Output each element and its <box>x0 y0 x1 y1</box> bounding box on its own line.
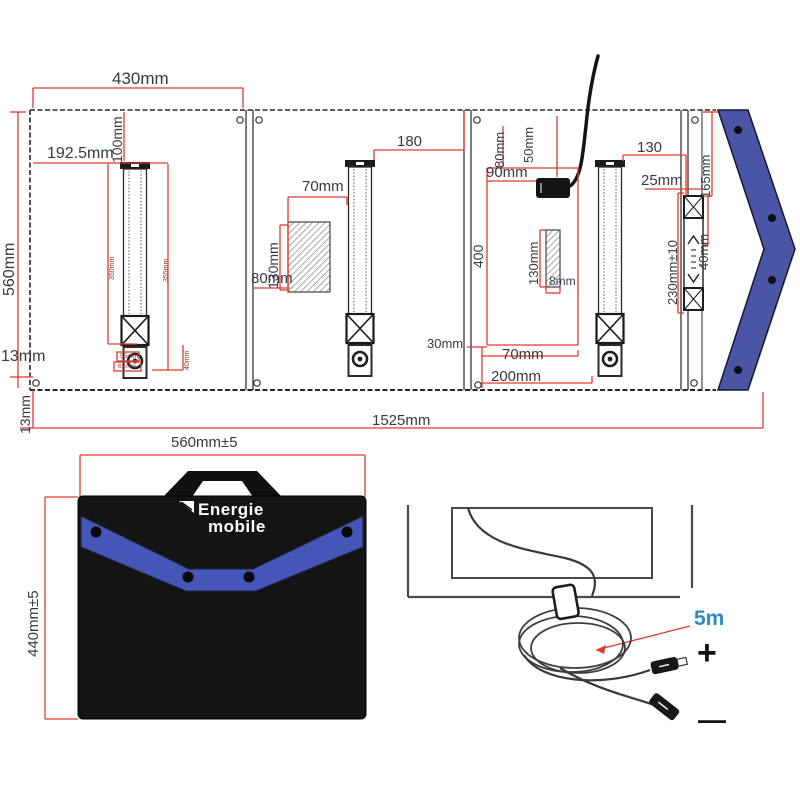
dim-panel3-strip-width: 8mm <box>549 275 576 287</box>
dim-left-height: 560mm <box>2 243 18 296</box>
dim-panel2-leg-gap: 180 <box>397 134 422 149</box>
dim-panel3-top-gap: 80mm <box>493 132 506 168</box>
dim-foot-height: 40mm <box>184 351 191 370</box>
dim-panel3-inner-height: 400 <box>471 245 485 268</box>
junction-box-panel2 <box>288 222 330 292</box>
dim-panel2-box-bottom: 80mm <box>251 271 293 286</box>
dim-leg-inner-left: 350mm <box>109 257 116 280</box>
brand-flag-icon <box>178 500 195 515</box>
dim-panel4-strap-length: 230mm±10 <box>666 240 679 305</box>
brand-line2: mobile <box>208 517 266 537</box>
dim-panel3-bottom-width1: 70mm <box>502 347 544 362</box>
dim-panel4-strap-gap: 25mm <box>641 173 683 188</box>
dim-folded-width: 560mm±5 <box>171 435 238 450</box>
cable-clip <box>552 584 579 619</box>
output-connector <box>536 56 598 198</box>
dim-leg1-offset: 192.5mm <box>47 146 114 162</box>
dim-folded-height: 440mm±5 <box>26 590 41 657</box>
blue-end-flap <box>718 110 795 390</box>
dim-total-width: 1525mm <box>372 413 430 428</box>
dim-panel3-bottom-gap: 30mm <box>427 337 463 350</box>
dim-bottom-left-gap: 13mm <box>1 349 45 365</box>
dim-panel3-cable-gap: 50mm <box>522 127 535 163</box>
energie-mobile-logo: Energie mobile <box>178 500 266 537</box>
solar-panel-dimension-diagram: 430mm 560mm 192.5mm 100mm 13mm 13mm 350m… <box>0 0 800 800</box>
dim-top-width: 430mm <box>112 70 169 87</box>
dim-panel2-box-width: 70mm <box>302 179 344 194</box>
dim-panel4-strap-segment: 40mm <box>697 234 710 270</box>
plus-sign: + <box>697 636 717 670</box>
dim-bottom-left-gap-vertical: 13mm <box>18 395 32 434</box>
dim-panel3-connector-width: 90mm <box>486 165 528 180</box>
cable-length-label: 5m <box>694 608 724 629</box>
dim-leg1-top-gap: 100mm <box>110 116 124 163</box>
dim-panel4-leg-gap: 130 <box>637 140 662 155</box>
dim-foot-width-inner: 55mm <box>120 354 138 361</box>
dim-panel3-bottom-width2: 200mm <box>491 369 541 384</box>
dim-panel3-strip-height: 130mm <box>527 242 540 285</box>
cable-drawing <box>408 505 692 721</box>
dim-foot-width-outer: 62mm <box>118 364 136 371</box>
minus-connector <box>648 692 680 721</box>
plus-connector <box>650 655 688 675</box>
dim-leg-inner-right: 355mm <box>163 259 170 282</box>
minus-sign: — <box>698 706 726 734</box>
dim-panel4-edge-height: 165mm <box>699 155 712 198</box>
